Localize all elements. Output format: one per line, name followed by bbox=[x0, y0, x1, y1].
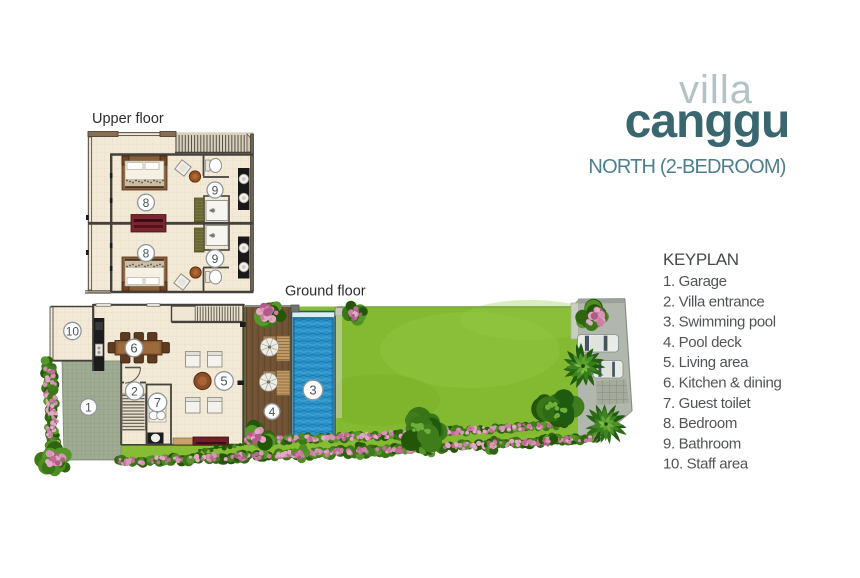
svg-text:1: 1 bbox=[85, 400, 92, 414]
svg-text:3. Swimming pool: 3. Swimming pool bbox=[663, 314, 776, 331]
svg-text:7. Guest toilet: 7. Guest toilet bbox=[663, 395, 751, 412]
svg-text:3: 3 bbox=[309, 383, 316, 398]
svg-text:canggu: canggu bbox=[625, 95, 790, 148]
svg-text:NORTH (2-BEDROOM): NORTH (2-BEDROOM) bbox=[588, 156, 785, 178]
svg-text:8: 8 bbox=[143, 246, 150, 260]
svg-text:10. Staff area: 10. Staff area bbox=[663, 456, 749, 473]
svg-text:Upper floor: Upper floor bbox=[92, 111, 164, 127]
svg-text:8: 8 bbox=[143, 196, 150, 210]
svg-text:1. Garage: 1. Garage bbox=[663, 273, 727, 290]
svg-text:2: 2 bbox=[131, 384, 138, 398]
svg-text:9. Bathroom: 9. Bathroom bbox=[663, 435, 741, 452]
svg-text:5. Living area: 5. Living area bbox=[663, 354, 749, 371]
svg-text:5: 5 bbox=[220, 374, 227, 389]
svg-text:2. Villa entrance: 2. Villa entrance bbox=[663, 293, 764, 310]
svg-text:9: 9 bbox=[212, 183, 219, 197]
svg-text:10: 10 bbox=[66, 324, 80, 338]
svg-text:7: 7 bbox=[154, 395, 161, 410]
svg-text:6: 6 bbox=[130, 341, 137, 356]
svg-text:KEYPLAN: KEYPLAN bbox=[663, 250, 739, 269]
svg-text:9: 9 bbox=[212, 252, 219, 266]
svg-text:6. Kitchen & dining: 6. Kitchen & dining bbox=[663, 375, 781, 392]
svg-text:4. Pool deck: 4. Pool deck bbox=[663, 334, 742, 351]
svg-text:8. Bedroom: 8. Bedroom bbox=[663, 415, 737, 432]
svg-text:4: 4 bbox=[269, 405, 276, 419]
svg-text:Ground floor: Ground floor bbox=[285, 284, 366, 300]
